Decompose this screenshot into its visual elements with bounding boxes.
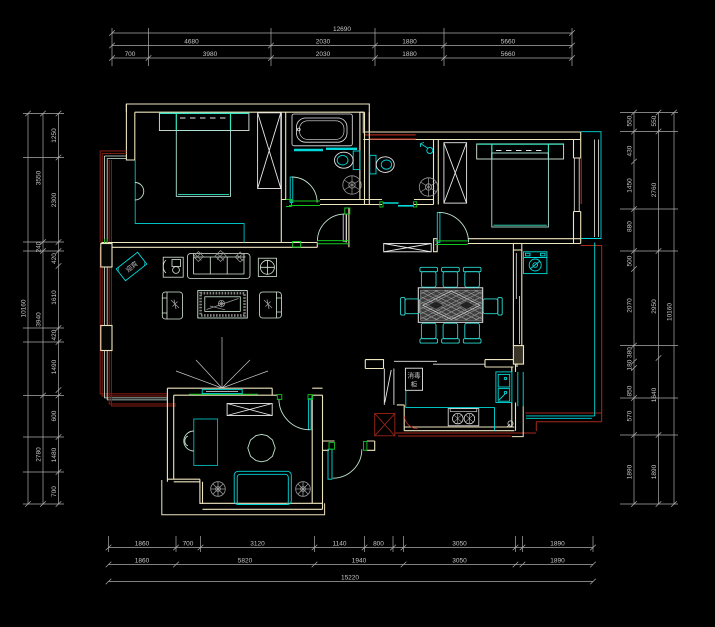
svg-text:3050: 3050	[452, 557, 467, 564]
svg-text:700: 700	[125, 51, 136, 58]
svg-text:430: 430	[627, 145, 634, 156]
svg-text:550: 550	[651, 115, 658, 126]
svg-text:1250: 1250	[51, 128, 58, 143]
svg-text:1450: 1450	[627, 178, 634, 193]
svg-text:2030: 2030	[316, 38, 331, 45]
svg-text:3940: 3940	[36, 312, 43, 327]
svg-text:1860: 1860	[135, 557, 150, 564]
svg-text:550: 550	[627, 115, 634, 126]
svg-text:1480: 1480	[51, 447, 58, 462]
svg-text:柜: 柜	[411, 380, 418, 389]
svg-text:5820: 5820	[238, 557, 253, 564]
svg-text:1880: 1880	[402, 38, 417, 45]
svg-text:1140: 1140	[333, 540, 347, 547]
svg-text:3980: 3980	[203, 51, 218, 58]
svg-text:1890: 1890	[627, 464, 634, 479]
svg-text:1890: 1890	[651, 464, 658, 479]
svg-text:1610: 1610	[51, 290, 58, 305]
svg-text:3120: 3120	[250, 540, 265, 547]
svg-text:2760: 2760	[651, 182, 658, 197]
svg-text:3550: 3550	[36, 170, 43, 185]
svg-text:420: 420	[51, 253, 58, 264]
svg-text:2950: 2950	[651, 299, 658, 314]
svg-text:15220: 15220	[341, 574, 359, 581]
svg-text:1890: 1890	[550, 540, 565, 547]
svg-text:2300: 2300	[51, 192, 58, 207]
svg-text:420: 420	[51, 329, 58, 340]
svg-text:600: 600	[51, 410, 58, 421]
svg-text:1490: 1490	[51, 359, 58, 374]
svg-text:570: 570	[627, 410, 634, 421]
svg-text:180: 180	[627, 359, 634, 370]
svg-text:700: 700	[183, 540, 194, 547]
svg-text:消毒: 消毒	[408, 371, 422, 380]
svg-text:1880: 1880	[402, 51, 417, 58]
svg-text:700: 700	[51, 486, 58, 497]
svg-text:240: 240	[36, 241, 43, 252]
svg-text:2070: 2070	[627, 298, 634, 313]
svg-text:3050: 3050	[452, 540, 467, 547]
svg-text:4680: 4680	[184, 38, 199, 45]
svg-text:5660: 5660	[501, 51, 516, 58]
svg-text:500: 500	[627, 255, 634, 266]
svg-text:880: 880	[627, 221, 634, 232]
svg-text:1890: 1890	[550, 557, 565, 564]
svg-text:2030: 2030	[316, 51, 331, 58]
svg-text:10160: 10160	[667, 303, 674, 321]
svg-text:800: 800	[373, 540, 384, 547]
svg-text:380: 380	[627, 347, 634, 358]
svg-text:850: 850	[627, 385, 634, 396]
svg-text:1640: 1640	[651, 387, 658, 402]
svg-text:2780: 2780	[36, 447, 43, 462]
svg-text:10160: 10160	[21, 299, 28, 317]
svg-text:5660: 5660	[501, 38, 516, 45]
svg-text:12690: 12690	[333, 26, 351, 33]
svg-text:1940: 1940	[352, 557, 367, 564]
svg-text:1860: 1860	[135, 540, 150, 547]
